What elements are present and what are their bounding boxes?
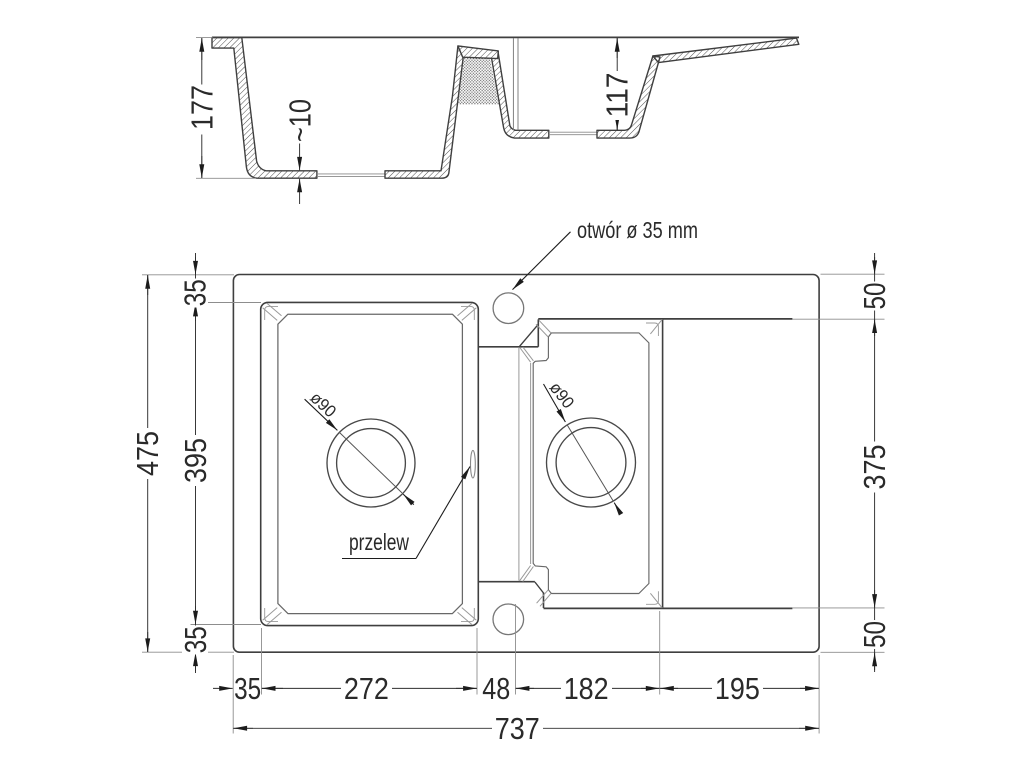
svg-text:otwór ø 35 mm: otwór ø 35 mm xyxy=(577,217,698,243)
svg-text:przelew: przelew xyxy=(349,529,409,555)
svg-text:182: 182 xyxy=(564,671,609,706)
svg-text:177: 177 xyxy=(185,85,220,130)
svg-text:~10: ~10 xyxy=(282,99,317,142)
svg-text:50: 50 xyxy=(857,621,892,648)
svg-text:117: 117 xyxy=(600,73,635,118)
svg-text:375: 375 xyxy=(857,445,892,490)
svg-text:35: 35 xyxy=(234,671,261,706)
svg-text:395: 395 xyxy=(178,438,213,483)
svg-text:195: 195 xyxy=(715,671,760,706)
svg-text:48: 48 xyxy=(482,671,510,706)
svg-text:272: 272 xyxy=(344,671,389,706)
svg-text:475: 475 xyxy=(130,431,165,476)
svg-text:35: 35 xyxy=(178,626,213,653)
svg-text:50: 50 xyxy=(857,283,892,310)
svg-text:35: 35 xyxy=(178,279,213,306)
svg-text:737: 737 xyxy=(495,711,540,746)
